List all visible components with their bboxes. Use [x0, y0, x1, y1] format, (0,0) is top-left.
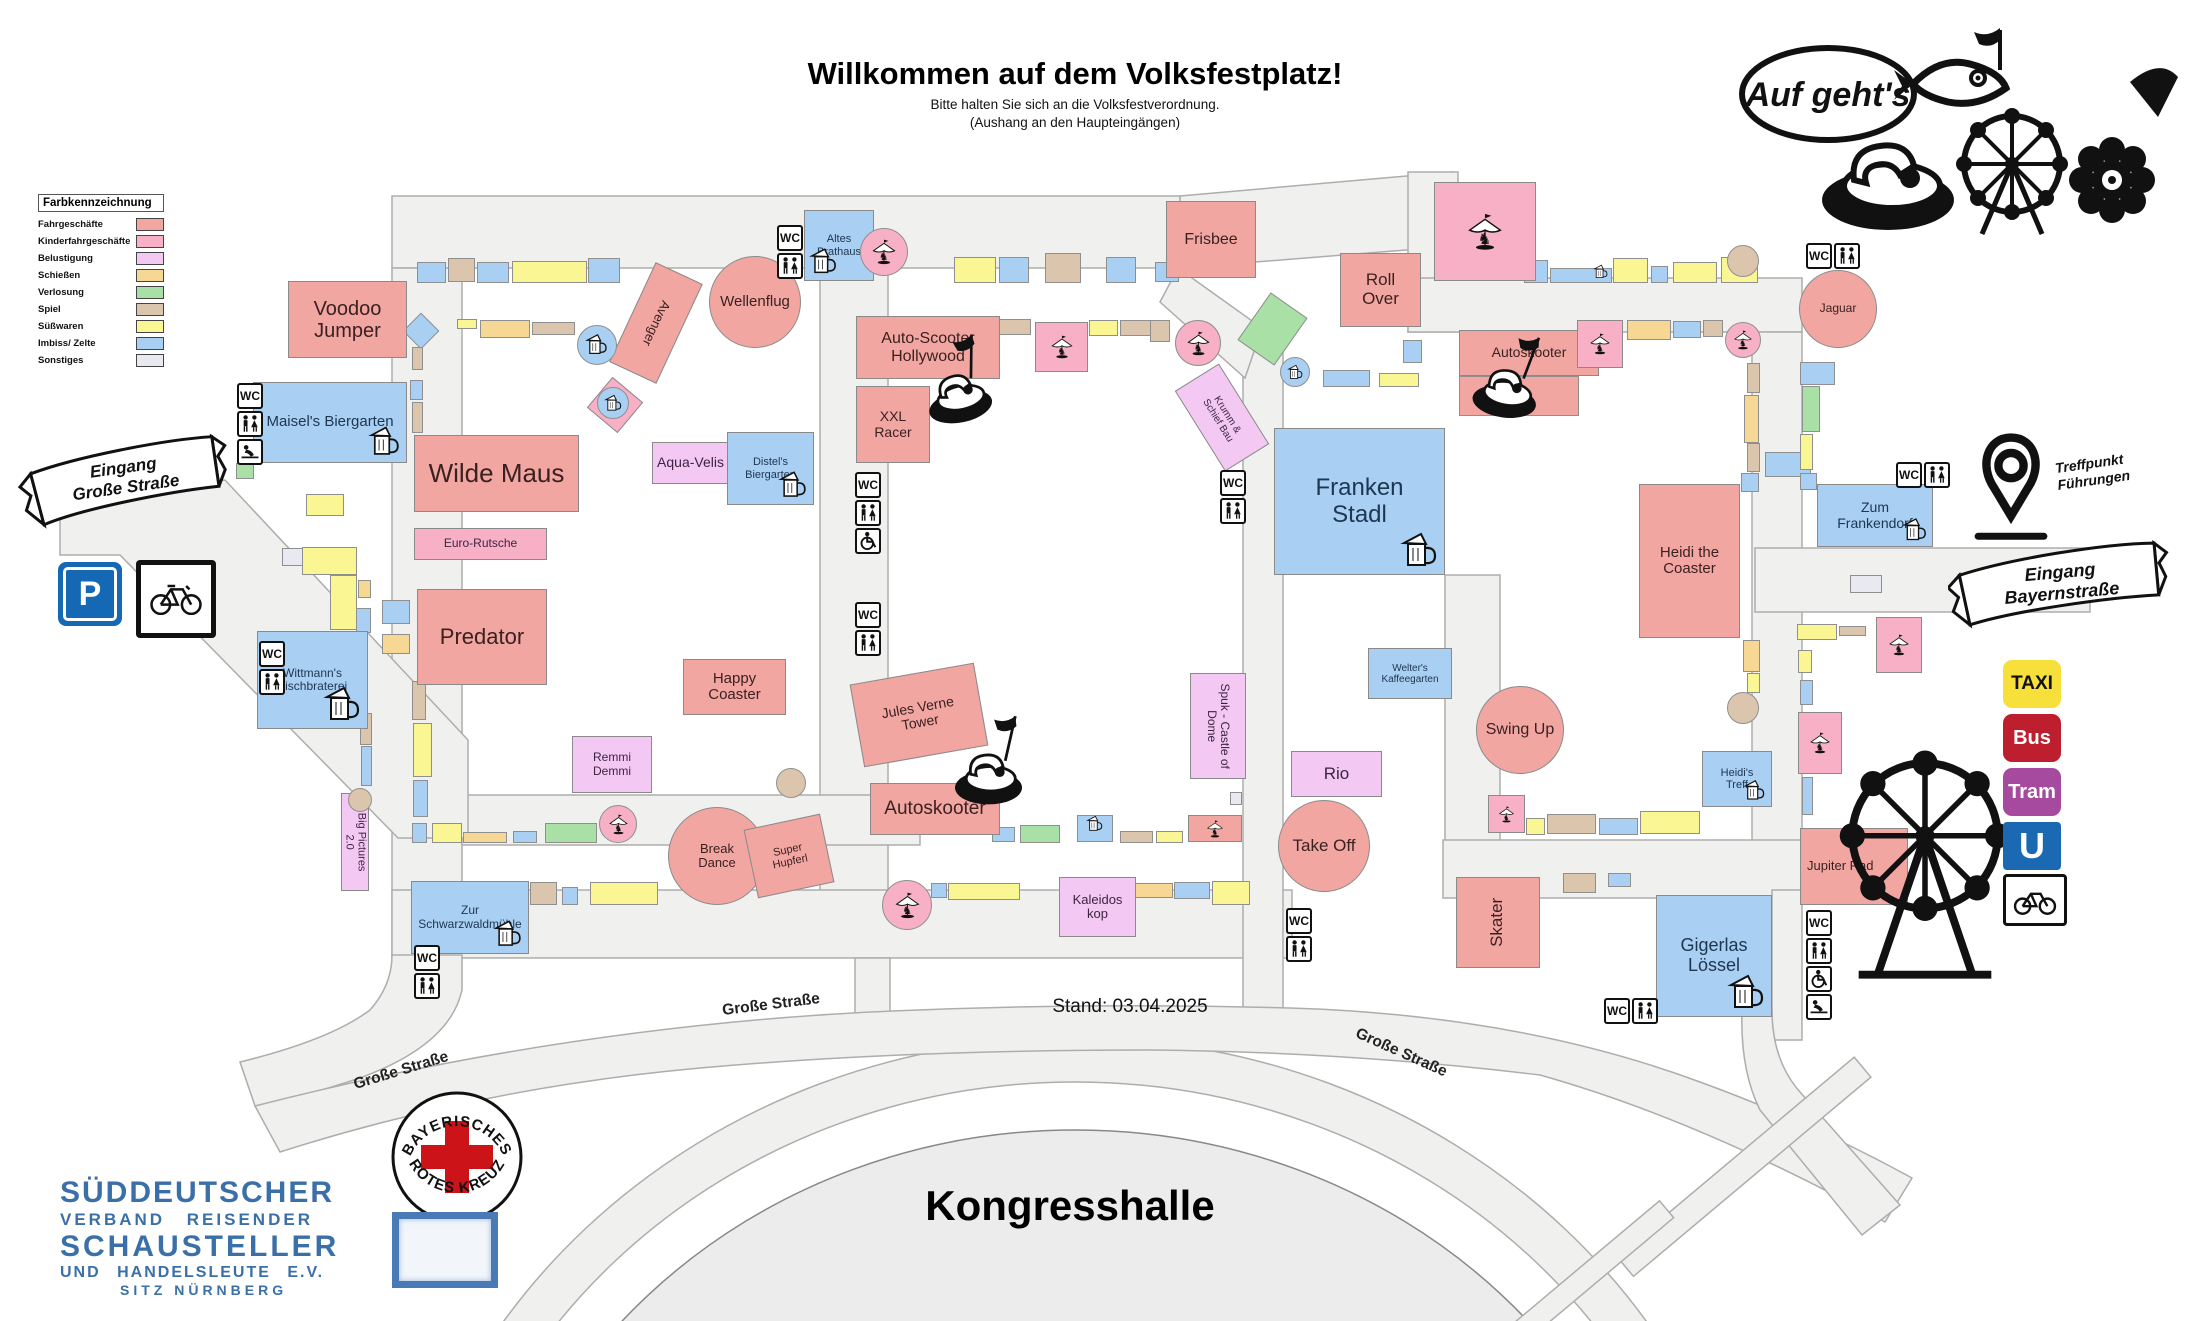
volksfestplatz-map: Willkommen auf dem Volksfestplatz! Bitte… — [0, 0, 2200, 1321]
taxi-badge: TAXI — [2003, 660, 2061, 708]
association-line: SCHAUSTELLER — [60, 1230, 390, 1264]
bus-label: Bus — [2013, 727, 2051, 750]
association-line: SÜDDEUTSCHER — [60, 1176, 390, 1210]
bus-badge: Bus — [2003, 714, 2061, 762]
taxi-label: TAXI — [2011, 673, 2053, 695]
ubahn-badge: U — [2003, 822, 2061, 870]
tram-badge: Tram — [2003, 768, 2061, 816]
bumper-car-icon — [1822, 145, 1954, 230]
parking-sign: P — [58, 562, 122, 626]
bicycle-icon — [2013, 885, 2057, 915]
association-emblem — [392, 1212, 498, 1288]
ubahn-label: U — [2019, 825, 2045, 867]
auf-gehts-logo: Auf geht's — [1710, 22, 2190, 247]
association-line: SITZ NÜRNBERG — [60, 1282, 390, 1298]
fish-icon — [1894, 28, 2006, 103]
flower-icon — [2069, 137, 2155, 223]
street-label: Große Straße — [1353, 1025, 1450, 1081]
bicycle-sign — [136, 560, 216, 638]
bicycle-icon — [149, 579, 203, 620]
association-logo: SÜDDEUTSCHER VERBAND REISENDER SCHAUSTEL… — [60, 1176, 390, 1298]
leaf-icon — [2130, 68, 2178, 117]
brk-logo: BAYERISCHES ROTES KREUZ — [386, 1086, 528, 1233]
association-line: VERBAND REISENDER — [60, 1210, 390, 1230]
parking-sign-label: P — [63, 567, 117, 621]
ferris-wheel-icon — [1956, 108, 2068, 234]
treffpunkt-pin-icon — [1968, 432, 2054, 549]
bicycle-badge — [2003, 874, 2067, 926]
street-label: Große Straße — [721, 990, 821, 1020]
kongresshalle-label: Kongresshalle — [890, 1182, 1250, 1230]
association-line: UND HANDELSLEUTE E.V. — [60, 1264, 390, 1282]
stand-label: Stand: 03.04.2025 — [1010, 996, 1250, 1018]
auf-gehts-label: Auf geht's — [1745, 76, 1911, 114]
tram-label: Tram — [2008, 781, 2056, 804]
